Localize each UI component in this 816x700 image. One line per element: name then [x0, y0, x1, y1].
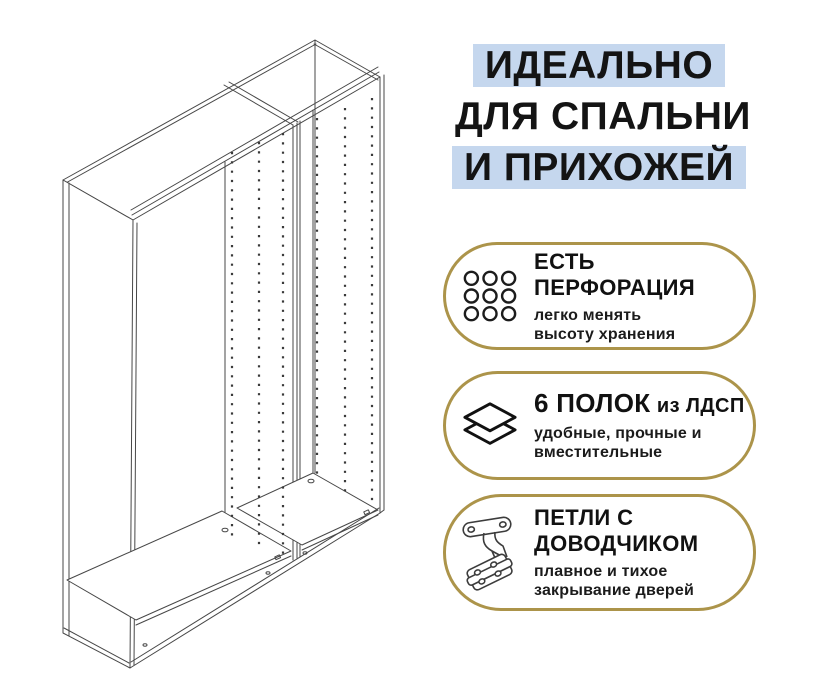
feature-card-shelves: 6 ПОЛОК из ЛДСП удобные, прочные и вмест…	[443, 371, 756, 480]
wardrobe-frames-line-art	[28, 10, 448, 690]
feature-title-line: ЕСТЬ	[534, 249, 749, 275]
headline-line-1: ИДЕАЛЬНО	[473, 44, 725, 87]
feature-subtitle-line: плавное и тихое	[534, 562, 749, 581]
perforation-grid-icon	[446, 269, 534, 323]
feature-title-suffix: из ЛДСП	[657, 395, 745, 417]
wardrobe-illustration	[28, 10, 448, 690]
feature-subtitle-line: закрывание дверей	[534, 581, 749, 600]
headline: ИДЕАЛЬНО ДЛЯ СПАЛЬНИ И ПРИХОЖЕЙ	[443, 44, 755, 197]
feature-title: 6 ПОЛОК	[534, 388, 650, 418]
feature-card-hinges: ПЕТЛИ С ДОВОДЧИКОМ плавное и тихое закры…	[443, 494, 756, 611]
shelves-layers-icon	[446, 400, 534, 452]
hinge-icon	[446, 511, 534, 595]
feature-subtitle-line: легко менять	[534, 306, 749, 325]
feature-subtitle-line: удобные, прочные и	[534, 424, 749, 443]
feature-subtitle-line: вместительные	[534, 443, 749, 462]
feature-subtitle-line: высоту хранения	[534, 325, 749, 344]
headline-line-3: И ПРИХОЖЕЙ	[452, 146, 746, 189]
headline-line-2: ДЛЯ СПАЛЬНИ	[443, 95, 763, 138]
feature-title-line: ПЕТЛИ С	[534, 505, 749, 531]
feature-title-line: ПЕРФОРАЦИЯ	[534, 275, 749, 301]
feature-title-line: ДОВОДЧИКОМ	[534, 531, 749, 557]
feature-card-perforation: ЕСТЬ ПЕРФОРАЦИЯ легко менять высоту хран…	[443, 242, 756, 350]
